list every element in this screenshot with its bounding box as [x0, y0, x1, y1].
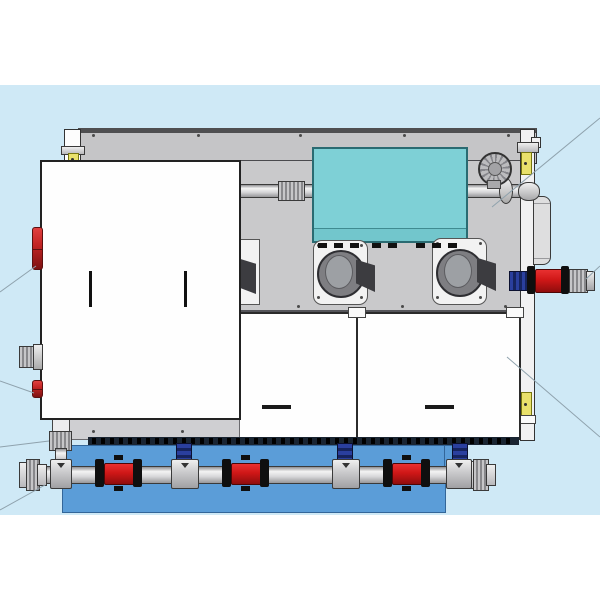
main-door-handle-left: [89, 271, 92, 307]
upper-pipe-outlet-cap: [518, 182, 540, 201]
grate-slot: [128, 438, 132, 444]
tee-v-mark: [455, 463, 463, 468]
grate-slot: [470, 438, 474, 444]
valve-tab-top: [114, 455, 123, 460]
screw: [197, 134, 200, 137]
door-gland-flange: [33, 344, 43, 370]
louver-slot: [350, 243, 359, 248]
screw: [436, 296, 439, 299]
grate-slot: [245, 438, 249, 444]
valve-tab-bottom: [402, 486, 411, 491]
valve-tab-bottom: [114, 486, 123, 491]
grate-slot: [425, 438, 429, 444]
teal-access-panel: [312, 147, 468, 243]
grate-slot: [254, 438, 258, 444]
valve-red-body: [392, 463, 423, 485]
grate-slot: [200, 438, 204, 444]
machine-top-rail: [78, 128, 537, 164]
valve-flange-right: [421, 459, 430, 487]
valve-flange-left: [383, 459, 392, 487]
handwheel-stem: [487, 180, 501, 189]
louver-slot: [318, 243, 327, 248]
lower-door-left: [233, 312, 358, 440]
blower-inlet-center: [325, 255, 353, 289]
right-warning-label-top: [521, 152, 532, 175]
louver-slot: [416, 243, 425, 248]
grate-slot: [146, 438, 150, 444]
seam-clip: [348, 307, 366, 318]
grate-slot: [290, 438, 294, 444]
grate-slot: [308, 438, 312, 444]
right-side-junction-box: [533, 196, 551, 265]
louver-slot: [334, 243, 343, 248]
screw: [317, 296, 320, 299]
grate-slot: [380, 438, 384, 444]
screw: [403, 134, 406, 137]
main-service-door: [40, 160, 241, 420]
manifold-tee: [446, 459, 472, 489]
valve-tab-top: [402, 455, 411, 460]
grate-slot: [263, 438, 267, 444]
valve-red-body: [104, 463, 135, 485]
grate-slot: [416, 438, 420, 444]
grate-slot: [272, 438, 276, 444]
valve-flange-right: [260, 459, 269, 487]
lower-door-right: [356, 312, 521, 440]
grate-slot: [110, 438, 114, 444]
discharge-flange-left: [527, 266, 535, 294]
screw: [401, 305, 404, 308]
grate-slot: [398, 438, 402, 444]
technical-diagram-canvas: [0, 0, 600, 600]
screw: [479, 296, 482, 299]
screw: [360, 244, 363, 247]
grate-slot: [119, 438, 123, 444]
grate-slot: [317, 438, 321, 444]
door-red-latch: [32, 227, 43, 270]
grate-slot: [326, 438, 330, 444]
lower-door-left-handle: [262, 405, 291, 409]
right-warning-label-bottom: [521, 392, 532, 416]
grate-slot: [164, 438, 168, 444]
screw: [181, 430, 184, 433]
grate-slot: [389, 438, 393, 444]
manifold-tee: [50, 459, 72, 489]
grate-slot: [497, 438, 501, 444]
grate-slot: [443, 438, 447, 444]
blower-inlet-right: [444, 254, 472, 288]
lower-door-right-handle: [425, 405, 454, 409]
grate-slot: [218, 438, 222, 444]
seam-clip: [506, 307, 524, 318]
valve-flange-left: [95, 459, 104, 487]
grate-slot: [236, 438, 240, 444]
grate-slot: [299, 438, 303, 444]
grate-slot: [407, 438, 411, 444]
handwheel-hub: [488, 162, 502, 176]
grate-slot: [101, 438, 105, 444]
tee-v-mark: [181, 463, 189, 468]
manifold-tee: [171, 459, 199, 489]
screw: [92, 134, 95, 137]
grate-slot: [371, 438, 375, 444]
grate-slot: [227, 438, 231, 444]
grate-slot: [506, 438, 510, 444]
grate-slot: [137, 438, 141, 444]
manifold-left-end-neck: [37, 464, 47, 486]
screw: [507, 134, 510, 137]
louver-slot: [388, 243, 397, 248]
valve-tab-bottom: [241, 486, 250, 491]
grate-slot: [281, 438, 285, 444]
main-door-handle-right: [184, 271, 187, 307]
screw: [479, 242, 482, 245]
manifold-tee: [332, 459, 360, 489]
upper-pipe-coupling: [278, 181, 305, 201]
screw: [360, 296, 363, 299]
grate-slot: [353, 438, 357, 444]
screw: [299, 134, 302, 137]
discharge-blue-fitting: [509, 271, 529, 291]
screw: [92, 430, 95, 433]
butterfly-valve: [383, 459, 430, 487]
tee-v-mark: [57, 463, 65, 468]
valve-flange-right: [133, 459, 142, 487]
manifold-right-end-cap: [486, 464, 496, 486]
louver-slot: [432, 243, 441, 248]
grate-slot: [209, 438, 213, 444]
discharge-end-cap: [586, 271, 595, 291]
grate-slot: [362, 438, 366, 444]
butterfly-valve: [222, 459, 269, 487]
grate-slot: [434, 438, 438, 444]
butterfly-valve: [95, 459, 142, 487]
valve-flange-left: [222, 459, 231, 487]
louver-slot: [448, 243, 457, 248]
discharge-valve-red-body: [535, 269, 563, 293]
grate-slot: [488, 438, 492, 444]
valve-red-body: [231, 463, 262, 485]
grate-slot: [479, 438, 483, 444]
valve-tab-top: [241, 455, 250, 460]
grate-slot: [155, 438, 159, 444]
door-red-connector: [32, 380, 43, 398]
discharge-flange-right: [561, 266, 569, 294]
grate-slot: [92, 438, 96, 444]
tee-v-mark: [342, 463, 350, 468]
louver-slot: [372, 243, 381, 248]
screw: [297, 305, 300, 308]
